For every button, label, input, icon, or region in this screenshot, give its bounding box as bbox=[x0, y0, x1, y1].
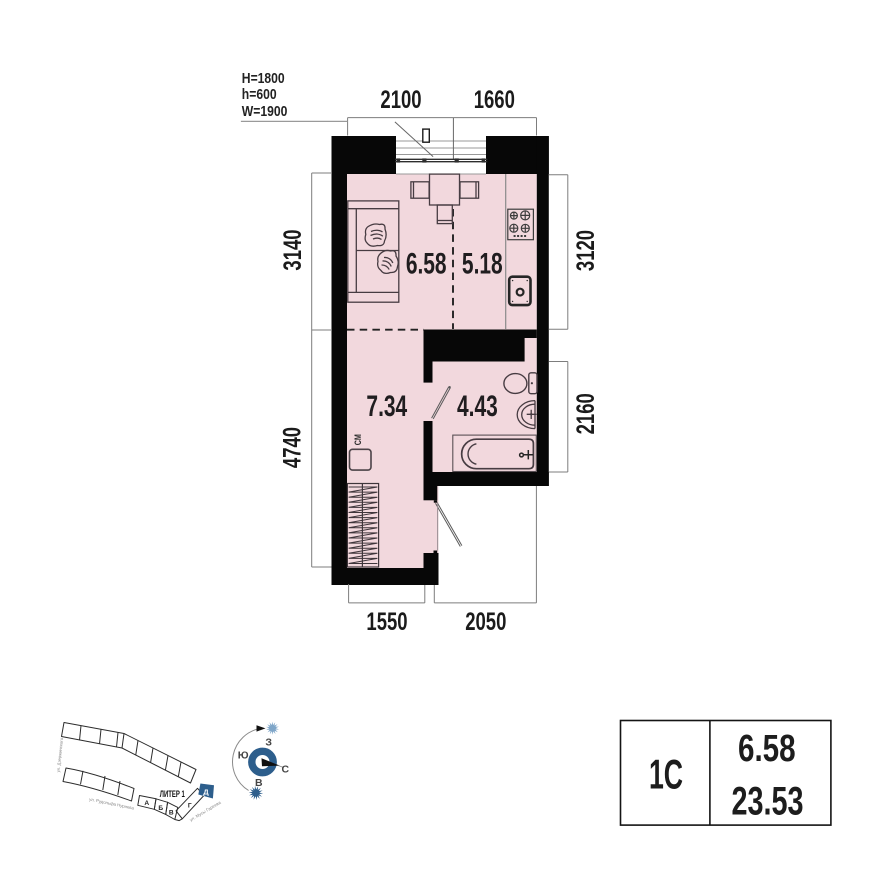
svg-text:А: А bbox=[144, 800, 149, 807]
svg-text:6.58: 6.58 bbox=[406, 248, 447, 280]
svg-text:4.43: 4.43 bbox=[457, 391, 498, 423]
svg-text:4740: 4740 bbox=[278, 427, 306, 468]
svg-text:1660: 1660 bbox=[474, 85, 515, 113]
svg-text:Д: Д bbox=[203, 787, 209, 796]
svg-text:2160: 2160 bbox=[571, 393, 599, 434]
svg-text:С: С bbox=[282, 763, 290, 775]
svg-text:СМ: СМ bbox=[352, 434, 363, 445]
svg-text:23.53: 23.53 bbox=[731, 779, 803, 824]
svg-text:2050: 2050 bbox=[465, 607, 506, 635]
svg-text:h=600: h=600 bbox=[242, 86, 277, 103]
svg-text:Ю: Ю bbox=[238, 750, 249, 762]
svg-text:Г: Г bbox=[188, 803, 192, 810]
svg-text:3140: 3140 bbox=[278, 229, 306, 270]
svg-text:7.34: 7.34 bbox=[366, 390, 407, 422]
svg-text:В: В bbox=[255, 777, 263, 789]
svg-text:H=1800: H=1800 bbox=[242, 70, 285, 87]
svg-text:5.18: 5.18 bbox=[462, 248, 503, 280]
svg-text:6.58: 6.58 bbox=[738, 728, 796, 770]
svg-text:1С: 1С bbox=[649, 752, 683, 798]
svg-text:ЛИТЕР 1: ЛИТЕР 1 bbox=[160, 789, 185, 800]
svg-text:Б: Б bbox=[158, 805, 163, 812]
svg-text:3120: 3120 bbox=[571, 230, 599, 271]
svg-text:W=1900: W=1900 bbox=[242, 103, 288, 120]
svg-text:З: З bbox=[265, 736, 272, 748]
svg-text:В: В bbox=[169, 810, 174, 817]
svg-text:2100: 2100 bbox=[380, 85, 421, 113]
svg-text:1550: 1550 bbox=[366, 607, 407, 635]
